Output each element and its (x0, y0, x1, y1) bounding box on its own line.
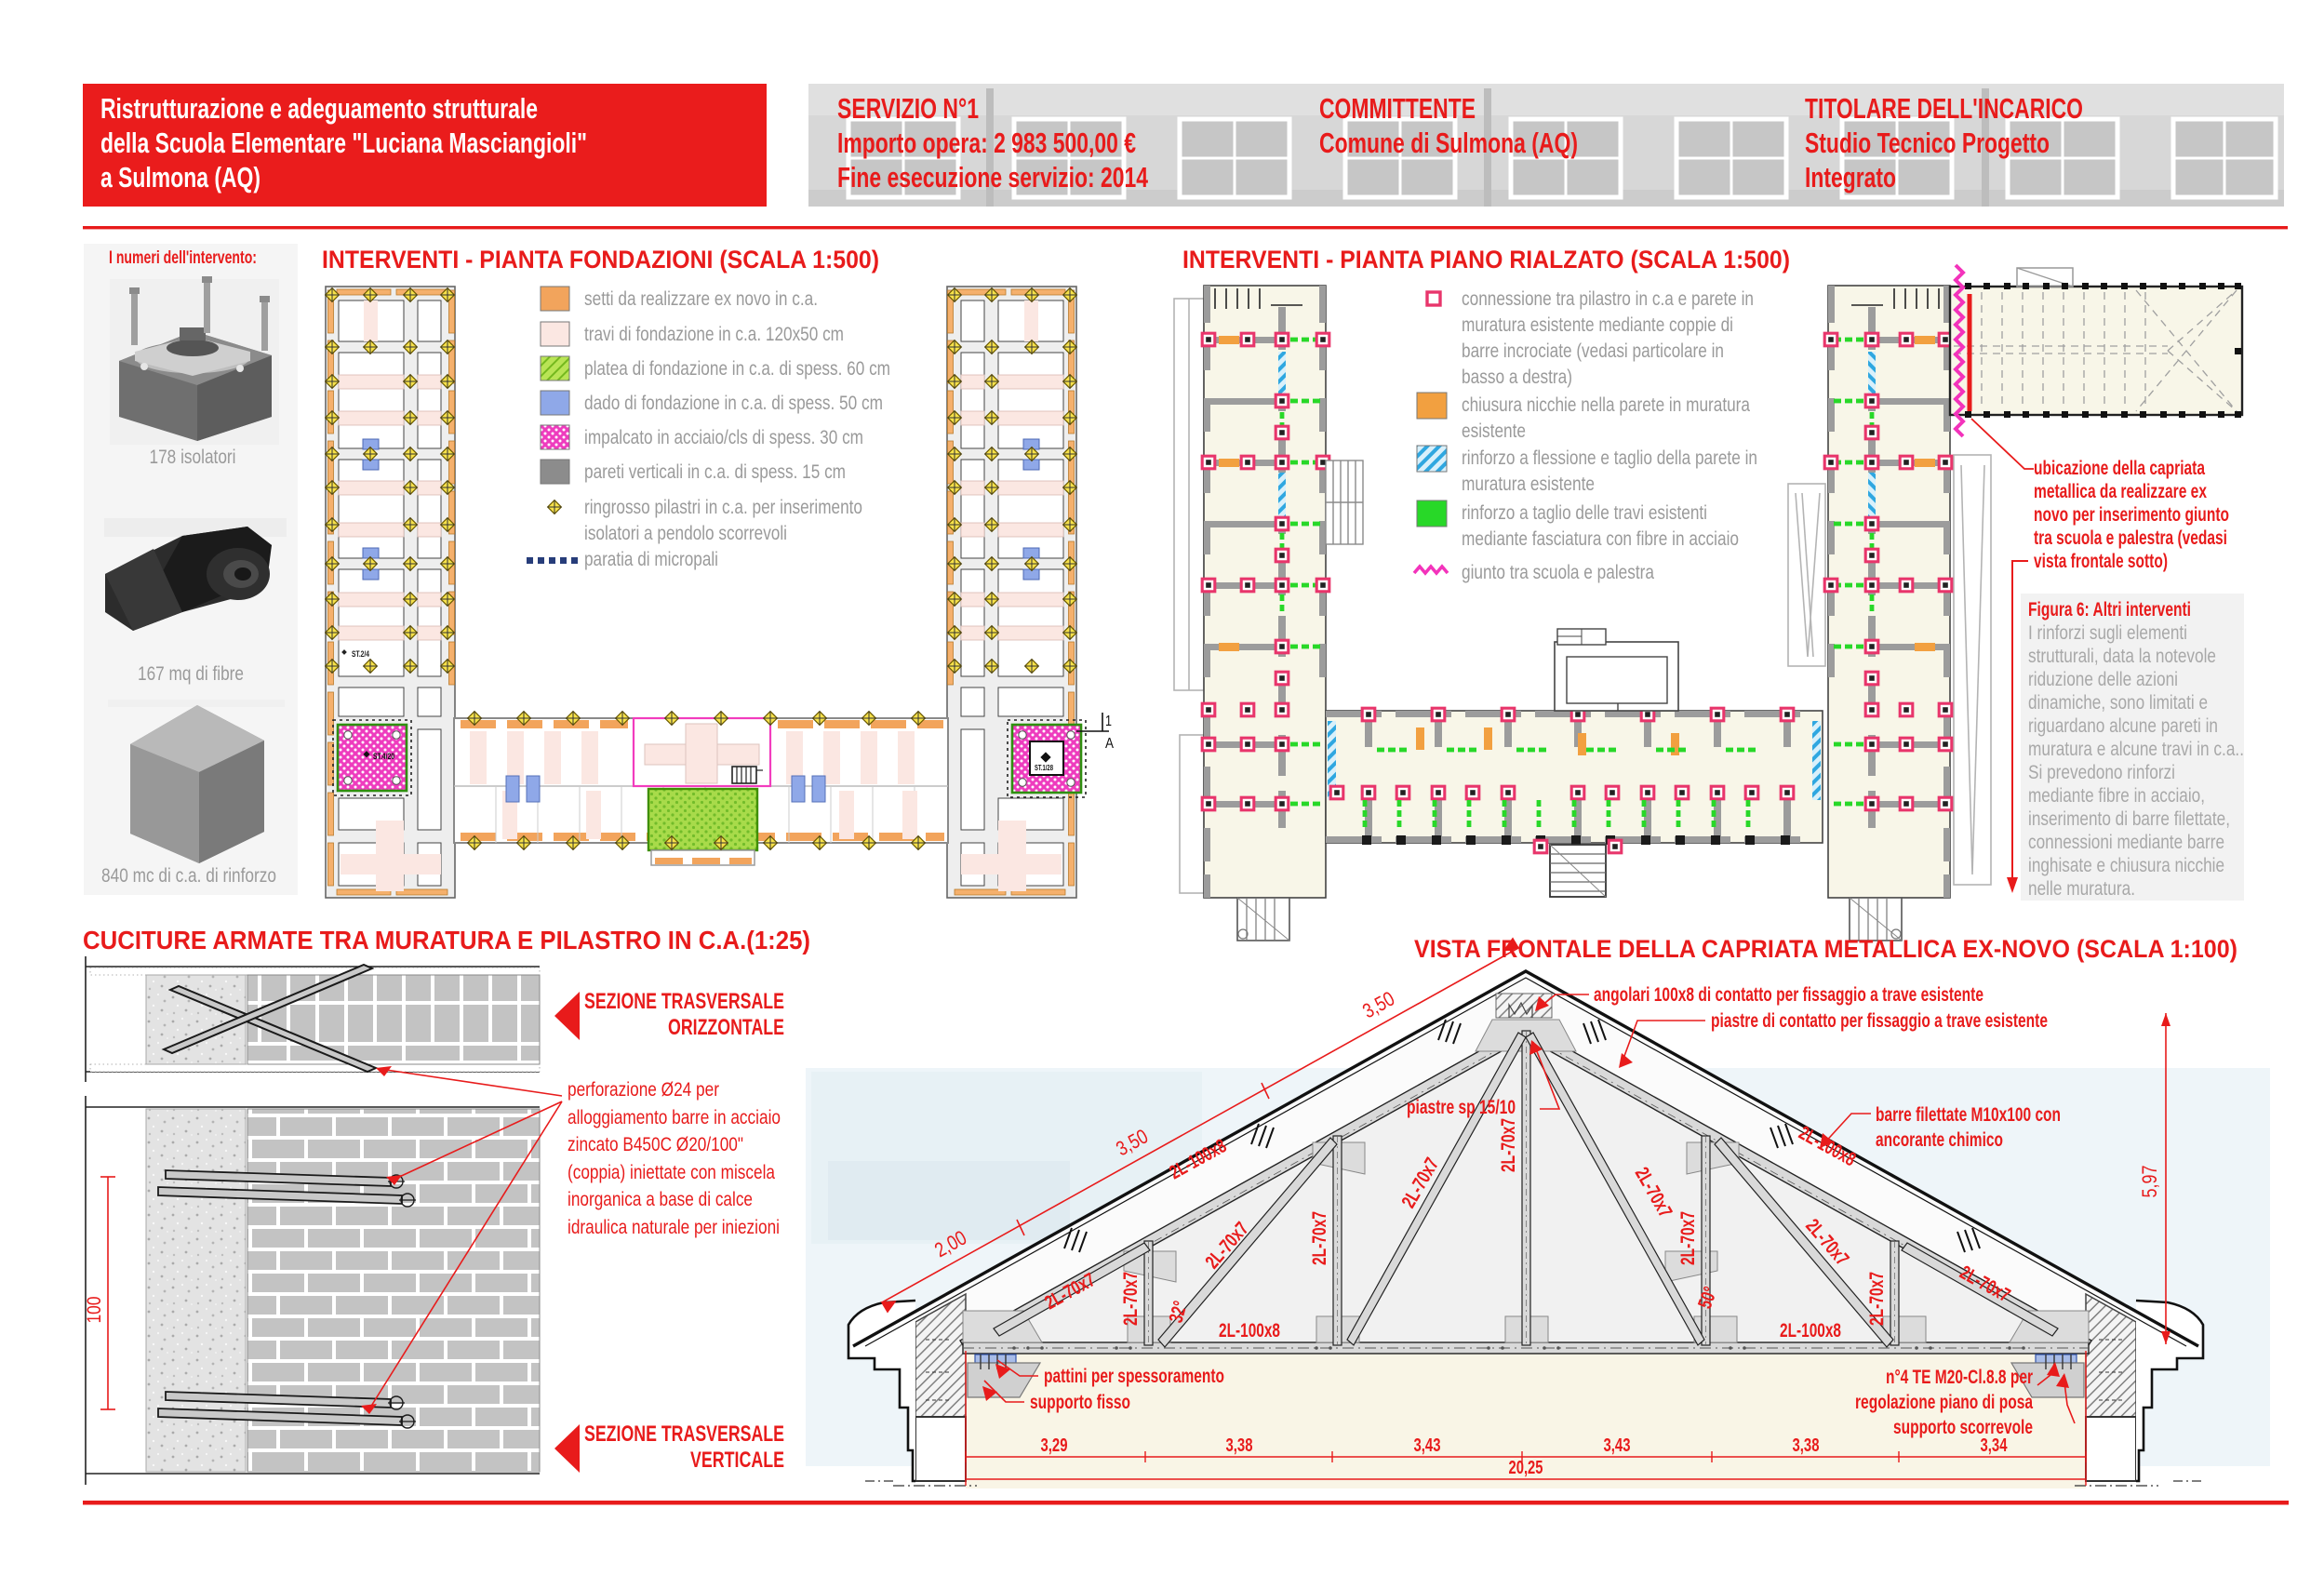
svg-text:SEZIONE TRASVERSALE: SEZIONE TRASVERSALE (584, 1422, 784, 1447)
svg-text:piastre sp 15/10: piastre sp 15/10 (1407, 1097, 1516, 1118)
svg-text:167 mq di fibre: 167 mq di fibre (138, 663, 244, 685)
svg-text:2L-70x7: 2L-70x7 (1309, 1211, 1330, 1265)
svg-text:840 mc di c.a. di rinforzo: 840 mc di c.a. di rinforzo (101, 865, 276, 887)
svg-text:inorganica a base di calce: inorganica a base di calce (568, 1189, 753, 1210)
svg-text:100: 100 (84, 1297, 105, 1324)
svg-text:Comune di Sulmona (AQ): Comune di Sulmona (AQ) (1319, 127, 1578, 159)
svg-text:INTERVENTI - PIANTA PIANO RIAL: INTERVENTI - PIANTA PIANO RIALZATO (SCAL… (1182, 246, 1790, 274)
svg-text:impalcato in acciaio/cls di sp: impalcato in acciaio/cls di spess. 30 cm (584, 427, 863, 448)
svg-text:2L-70x7: 2L-70x7 (1677, 1211, 1699, 1265)
svg-text:tra scuola e palestra (vedasi: tra scuola e palestra (vedasi (2034, 527, 2227, 549)
svg-text:VERTICALE: VERTICALE (690, 1448, 784, 1473)
svg-text:178 isolatori: 178 isolatori (150, 447, 236, 468)
svg-text:COMMITTENTE: COMMITTENTE (1319, 92, 1476, 125)
svg-text:Figura 6: Altri interventi: Figura 6: Altri interventi (2028, 599, 2191, 621)
svg-text:platea di fondazione in c.a. d: platea di fondazione in c.a. di spess. 6… (584, 358, 890, 380)
svg-text:ORIZZONTALE: ORIZZONTALE (668, 1015, 784, 1040)
svg-text:a Sulmona (AQ): a Sulmona (AQ) (100, 161, 260, 194)
svg-text:perforazione Ø24 per: perforazione Ø24 per (568, 1079, 719, 1101)
svg-text:TITOLARE DELL'INCARICO: TITOLARE DELL'INCARICO (1805, 92, 2083, 125)
svg-text:connessione tra pilastro in c.: connessione tra pilastro in c.a e parete… (1462, 288, 1754, 310)
svg-text:CUCITURE ARMATE TRA MURATURA E: CUCITURE ARMATE TRA MURATURA E PILASTRO … (83, 926, 810, 954)
svg-text:2L-70x7: 2L-70x7 (1498, 1118, 1519, 1172)
svg-text:3,43: 3,43 (1604, 1435, 1631, 1456)
svg-text:5,97: 5,97 (2138, 1166, 2161, 1198)
svg-text:angolari 100x8 di contatto per: angolari 100x8 di contatto per fissaggio… (1594, 984, 1983, 1006)
svg-text:travi di fondazione in c.a. 12: travi di fondazione in c.a. 120x50 cm (584, 324, 844, 345)
svg-text:2L-100x8: 2L-100x8 (1780, 1320, 1841, 1341)
svg-text:supporto fisso: supporto fisso (1030, 1392, 1130, 1413)
svg-text:Importo opera: 2 983 500,00 €: Importo opera: 2 983 500,00 € (837, 127, 1136, 159)
svg-text:ancorante chimico: ancorante chimico (1876, 1129, 2003, 1151)
svg-text:SEZIONE TRASVERSALE: SEZIONE TRASVERSALE (584, 989, 784, 1014)
svg-text:idraulica naturale per iniezio: idraulica naturale per iniezioni (568, 1217, 780, 1238)
svg-text:SERVIZIO N°1: SERVIZIO N°1 (837, 92, 979, 125)
svg-text:riduzione delle azioni: riduzione delle azioni (2028, 669, 2178, 690)
svg-text:Ristrutturazione e adeguamento: Ristrutturazione e adeguamento struttura… (100, 92, 538, 125)
svg-text:mediante fibre in acciaio,: mediante fibre in acciaio, (2028, 785, 2205, 807)
svg-text:3,34: 3,34 (1981, 1435, 2009, 1456)
svg-text:3,43: 3,43 (1414, 1435, 1441, 1456)
svg-text:muratura esistente mediante co: muratura esistente mediante coppie di (1462, 314, 1733, 336)
svg-text:3,38: 3,38 (1793, 1435, 1820, 1456)
svg-text:3,38: 3,38 (1226, 1435, 1253, 1456)
svg-text:inserimento di barre filettate: inserimento di barre filettate, (2028, 808, 2230, 830)
svg-text:barre filettate M10x100 con: barre filettate M10x100 con (1876, 1104, 2061, 1126)
svg-text:Si prevedono rinforzi: Si prevedono rinforzi (2028, 762, 2175, 783)
svg-text:vista frontale sotto): vista frontale sotto) (2034, 551, 2168, 572)
svg-text:della Scuola Elementare "Lucia: della Scuola Elementare "Luciana Mascian… (100, 127, 587, 159)
svg-text:n°4 TE M20-Cl.8.8 per: n°4 TE M20-Cl.8.8 per (1886, 1367, 2033, 1388)
svg-text:1: 1 (1105, 714, 1112, 729)
svg-text:strutturali, data la notevole: strutturali, data la notevole (2028, 646, 2216, 667)
svg-text:basso a destra): basso a destra) (1462, 367, 1572, 388)
svg-text:mediante fasciatura con fibre: mediante fasciatura con fibre in acciaio (1462, 528, 1739, 550)
svg-text:ubicazione della capriata: ubicazione della capriata (2034, 458, 2205, 479)
svg-text:A: A (1105, 736, 1114, 752)
svg-text:novo per inserimento giunto: novo per inserimento giunto (2034, 504, 2229, 526)
svg-text:regolazione piano di posa: regolazione piano di posa (1855, 1392, 2033, 1413)
svg-text:2L-70x7: 2L-70x7 (1120, 1272, 1142, 1326)
svg-text:2L-70x7: 2L-70x7 (1866, 1272, 1888, 1326)
svg-text:nelle muratura.: nelle muratura. (2028, 878, 2135, 900)
svg-text:setti da realizzare ex novo in: setti da realizzare ex novo in c.a. (584, 288, 818, 310)
svg-text:zincato B450C Ø20/100": zincato B450C Ø20/100" (568, 1134, 743, 1155)
svg-text:ST.4/20: ST.4/20 (373, 752, 394, 761)
svg-text:2L-100x8: 2L-100x8 (1219, 1320, 1280, 1341)
svg-text:muratura e alcune travi in c.a: muratura e alcune travi in c.a.. (2028, 739, 2244, 760)
svg-text:isolatori a pendolo scorrevoli: isolatori a pendolo scorrevoli (584, 523, 787, 544)
svg-text:alloggiamento barre in acciaio: alloggiamento barre in acciaio (568, 1107, 781, 1128)
svg-text:INTERVENTI - PIANTA FONDAZIONI: INTERVENTI - PIANTA FONDAZIONI (SCALA 1:… (322, 246, 879, 274)
svg-text:3,29: 3,29 (1041, 1435, 1068, 1456)
svg-text:VISTA FRONTALE DELLA CAPRIATA: VISTA FRONTALE DELLA CAPRIATA METALLICA … (1414, 935, 2237, 963)
svg-text:giunto tra scuola e palestra: giunto tra scuola e palestra (1462, 562, 1654, 583)
svg-text:rinforzo a flessione e taglio: rinforzo a flessione e taglio della pare… (1462, 447, 1757, 469)
svg-text:piastre di contatto per fissag: piastre di contatto per fissaggio a trav… (1711, 1010, 2048, 1032)
svg-text:Studio Tecnico Progetto: Studio Tecnico Progetto (1805, 127, 2050, 159)
svg-text:pattini per spessoramento: pattini per spessoramento (1044, 1366, 1224, 1387)
svg-text:I rinforzi sugli elementi: I rinforzi sugli elementi (2028, 622, 2187, 644)
svg-text:muratura esistente: muratura esistente (1462, 474, 1595, 495)
svg-text:Integrato: Integrato (1805, 161, 1896, 194)
svg-text:rinforzo a taglio delle travi: rinforzo a taglio delle travi esistenti (1462, 502, 1707, 524)
svg-text:20,25: 20,25 (1509, 1458, 1543, 1478)
svg-text:I numeri dell'intervento:: I numeri dell'intervento: (109, 248, 257, 268)
svg-text:(coppia) iniettate con miscela: (coppia) iniettate con miscela (568, 1162, 775, 1183)
svg-text:paratia di micropali: paratia di micropali (584, 549, 718, 570)
svg-text:connessioni mediante barre: connessioni mediante barre (2028, 832, 2224, 853)
svg-text:ST.2/4: ST.2/4 (352, 649, 369, 659)
svg-text:supporto scorrevole: supporto scorrevole (1893, 1417, 2033, 1438)
svg-text:riguardano alcune pareti in: riguardano alcune pareti in (2028, 715, 2218, 737)
svg-text:dado di fondazione in c.a. di: dado di fondazione in c.a. di spess. 50 … (584, 393, 883, 414)
svg-text:ST.1/28: ST.1/28 (1035, 764, 1053, 772)
svg-text:dinamiche, sono limitati e: dinamiche, sono limitati e (2028, 692, 2208, 714)
svg-text:barre incrociate (vedasi parti: barre incrociate (vedasi particolare in (1462, 340, 1724, 362)
svg-text:chiusura nicchie nella parete: chiusura nicchie nella parete in muratur… (1462, 394, 1750, 416)
svg-text:esistente: esistente (1462, 420, 1526, 442)
svg-text:inghisate e chiusura nicchie: inghisate e chiusura nicchie (2028, 855, 2224, 876)
svg-text:pareti verticali in c.a. di sp: pareti verticali in c.a. di spess. 15 cm (584, 461, 846, 483)
svg-text:Fine esecuzione servizio: 2014: Fine esecuzione servizio: 2014 (837, 161, 1149, 194)
svg-text:ringrosso pilastri in c.a. per: ringrosso pilastri in c.a. per inserimen… (584, 497, 862, 518)
svg-text:metallica da realizzare ex: metallica da realizzare ex (2034, 481, 2207, 502)
